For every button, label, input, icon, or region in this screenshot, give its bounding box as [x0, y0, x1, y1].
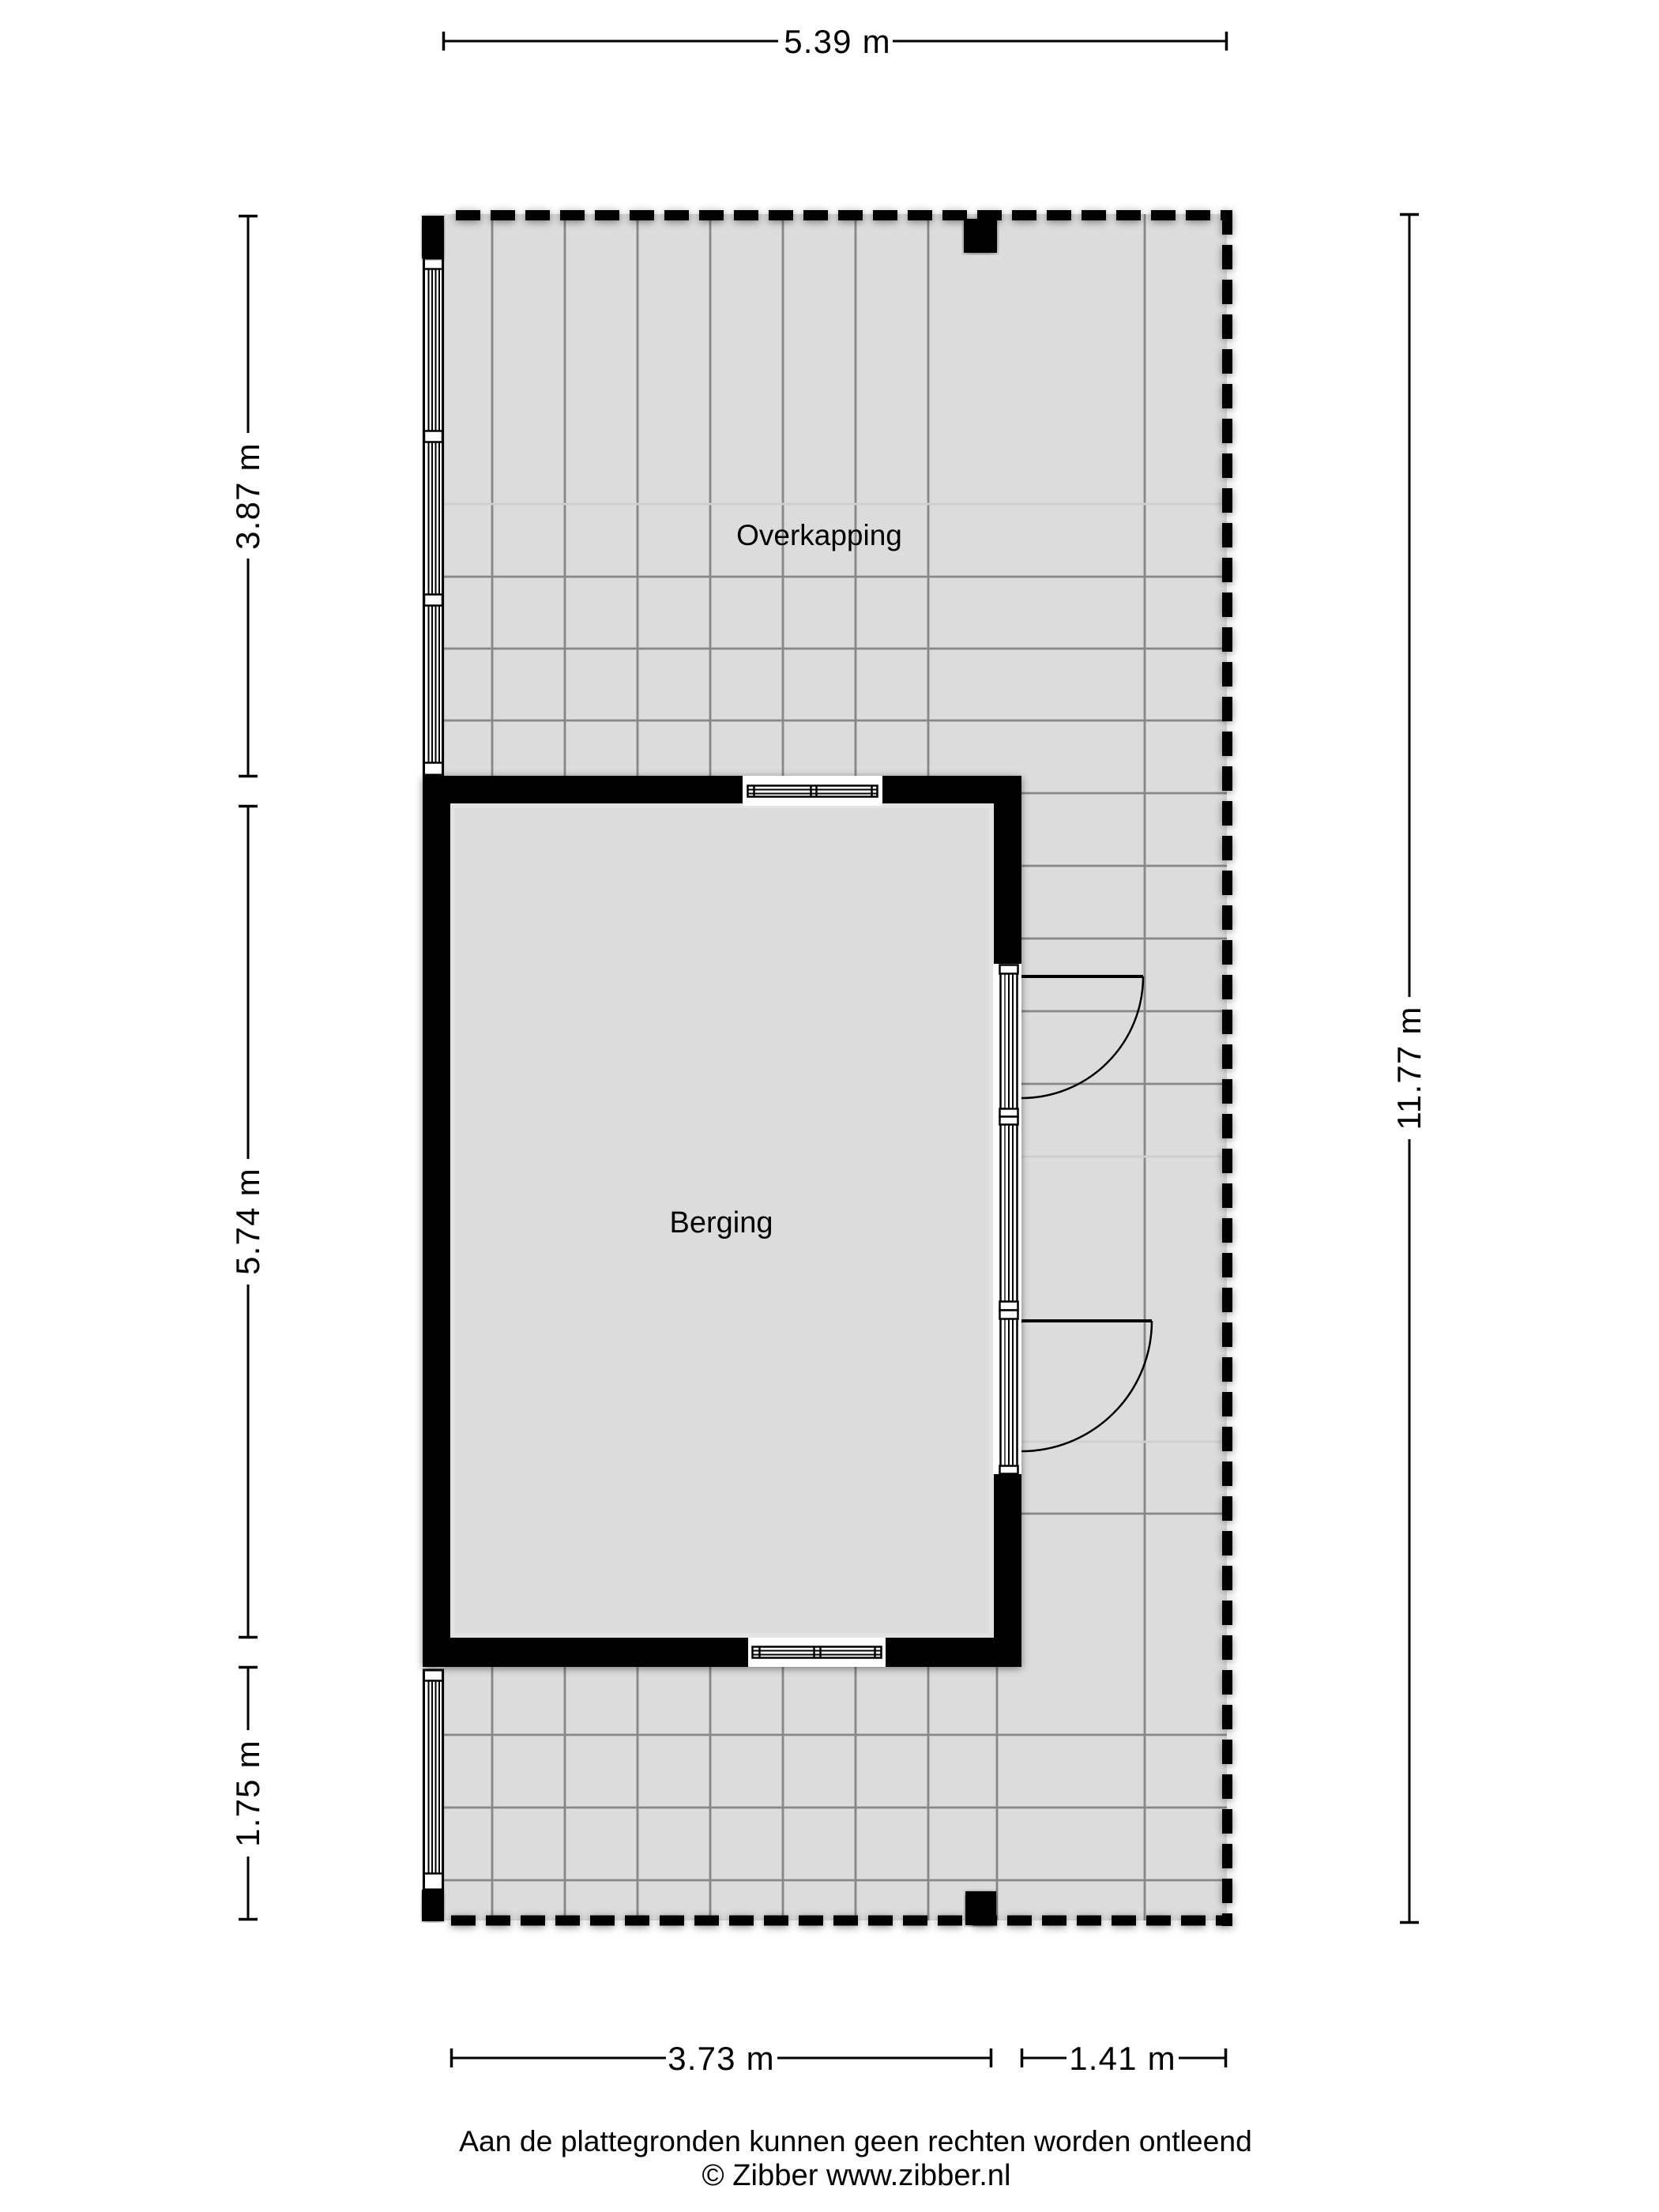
svg-text:5.74 m: 5.74 m: [229, 1168, 266, 1275]
svg-text:Aan de plattegronden kunnen ge: Aan de plattegronden kunnen geen rechten…: [459, 2124, 1252, 2157]
svg-text:3.73 m: 3.73 m: [668, 2040, 775, 2077]
svg-text:5.39 m: 5.39 m: [784, 23, 891, 60]
svg-text:1.75 m: 1.75 m: [229, 1740, 266, 1847]
svg-text:3.87 m: 3.87 m: [229, 442, 266, 550]
svg-text:Berging: Berging: [670, 1206, 773, 1240]
svg-text:Overkapping: Overkapping: [736, 519, 902, 551]
svg-text:© Zibber www.zibber.nl: © Zibber www.zibber.nl: [702, 2158, 1010, 2192]
svg-text:1.41 m: 1.41 m: [1069, 2040, 1176, 2077]
svg-text:11.77 m: 11.77 m: [1390, 1006, 1428, 1130]
